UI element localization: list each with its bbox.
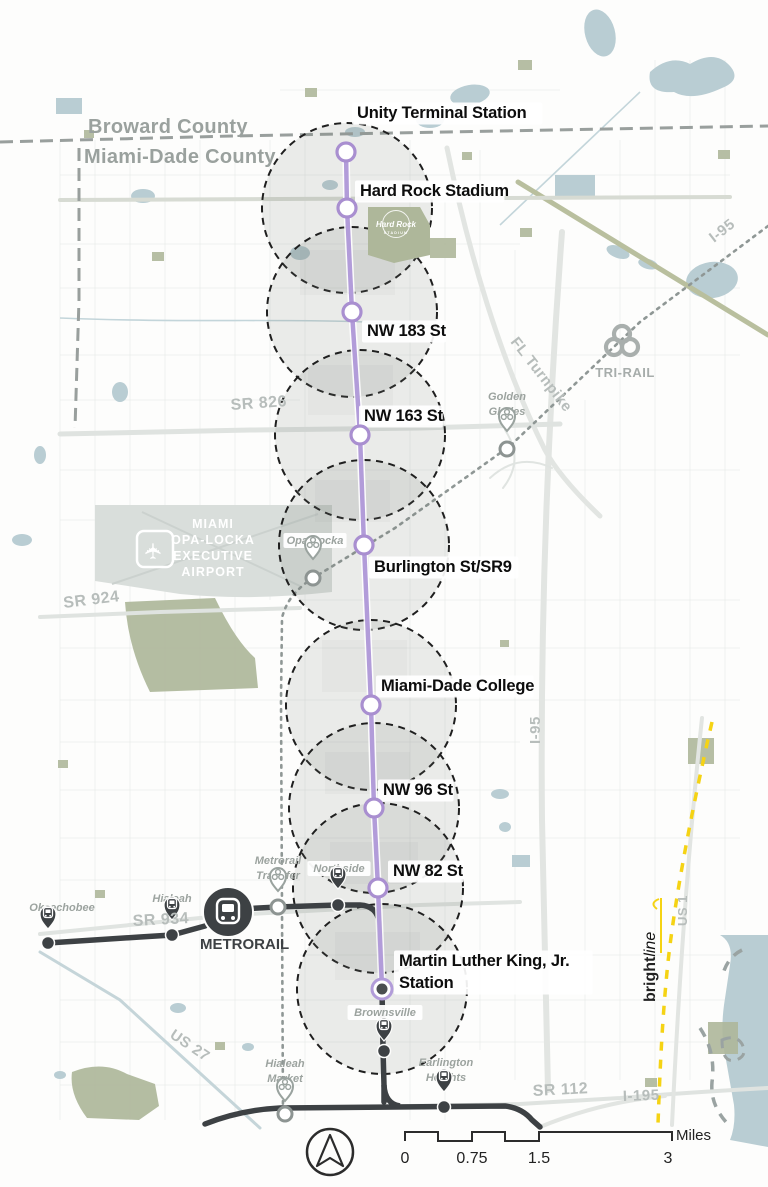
rail-stop-ring xyxy=(278,1107,292,1121)
metrorail-label: METRORAIL xyxy=(200,936,289,953)
station-marker xyxy=(362,696,380,714)
place-label: Brownsville xyxy=(354,1007,416,1019)
brightline-label: brightline xyxy=(642,932,659,1002)
rail-stop-dot xyxy=(42,937,55,950)
station-marker xyxy=(337,143,355,161)
scale-tick-label: 1.5 xyxy=(528,1150,550,1167)
station-label: NW 163 St xyxy=(364,407,444,425)
scale-tick-label: 3 xyxy=(664,1150,673,1167)
station-marker xyxy=(338,199,356,217)
tri-rail-label: TRI-RAIL xyxy=(595,365,655,380)
station-martin-luther-king-jr-station: Martin Luther King, Jr.Station xyxy=(372,951,593,1000)
county-label: Miami-Dade County xyxy=(84,146,276,168)
metrorail-icon xyxy=(203,887,253,937)
station-marker xyxy=(365,799,383,817)
scale-unit-label: Miles xyxy=(676,1127,711,1144)
scale-tick-label: 0.75 xyxy=(456,1150,487,1167)
road-label: US 1 xyxy=(675,895,690,926)
station-label: Burlington St/SR9 xyxy=(374,558,512,576)
rail-stop-ring xyxy=(306,571,320,585)
rail-stop-dot xyxy=(332,899,345,912)
airport-label: EXECUTIVE xyxy=(173,549,253,563)
airport-label: OPA-LOCKA xyxy=(171,533,255,547)
map-canvas: ✈MIAMIOPA-LOCKAEXECUTIVEAIRPORTHard Rock… xyxy=(0,0,768,1187)
station-label: Miami-Dade College xyxy=(381,677,534,695)
road-label: SR 934 xyxy=(132,910,189,930)
station-label: Station xyxy=(399,974,454,992)
station-label: NW 183 St xyxy=(367,322,447,340)
rail-stop-ring xyxy=(271,900,285,914)
hard-rock-logo-subtext: STADIUM xyxy=(384,231,409,235)
station-marker xyxy=(351,426,369,444)
airport-label: AIRPORT xyxy=(181,565,244,579)
road-label: SR 112 xyxy=(532,1080,588,1100)
station-label: Unity Terminal Station xyxy=(357,104,527,122)
station-label: NW 82 St xyxy=(393,862,464,880)
place-label: Okeechobee xyxy=(29,902,94,914)
airplane-glyph: ✈ xyxy=(141,542,166,560)
rail-stop-dot xyxy=(438,1101,451,1114)
county-label: Broward County xyxy=(88,116,248,138)
rail-stop-dot xyxy=(378,1045,391,1058)
tri-rail-label: TRI-RAIL xyxy=(595,365,655,380)
station-marker xyxy=(343,303,361,321)
corridor-map: ✈MIAMIOPA-LOCKAEXECUTIVEAIRPORTHard Rock… xyxy=(0,0,768,1187)
hard-rock-logo-text: Hard Rock xyxy=(376,220,417,229)
place-label: Metrorail xyxy=(255,855,302,867)
station-label: NW 96 St xyxy=(383,781,454,799)
road-label: I-95 xyxy=(527,716,544,744)
metrorail-label: METRORAIL xyxy=(200,936,289,953)
station-label: Martin Luther King, Jr. xyxy=(399,952,570,970)
airport-label: MIAMI xyxy=(192,517,234,531)
scale-tick-label: 0 xyxy=(401,1150,410,1167)
station-marker xyxy=(355,536,373,554)
place-label: Golden xyxy=(488,391,526,403)
rail-stop-ring xyxy=(500,442,514,456)
place-label: Hialeah xyxy=(265,1058,304,1070)
rail-stop-dot xyxy=(166,929,179,942)
road-label: I-195 xyxy=(623,1087,660,1105)
place-label: Earlington xyxy=(419,1057,474,1069)
station-marker xyxy=(369,879,387,897)
station-label: Hard Rock Stadium xyxy=(360,182,509,200)
